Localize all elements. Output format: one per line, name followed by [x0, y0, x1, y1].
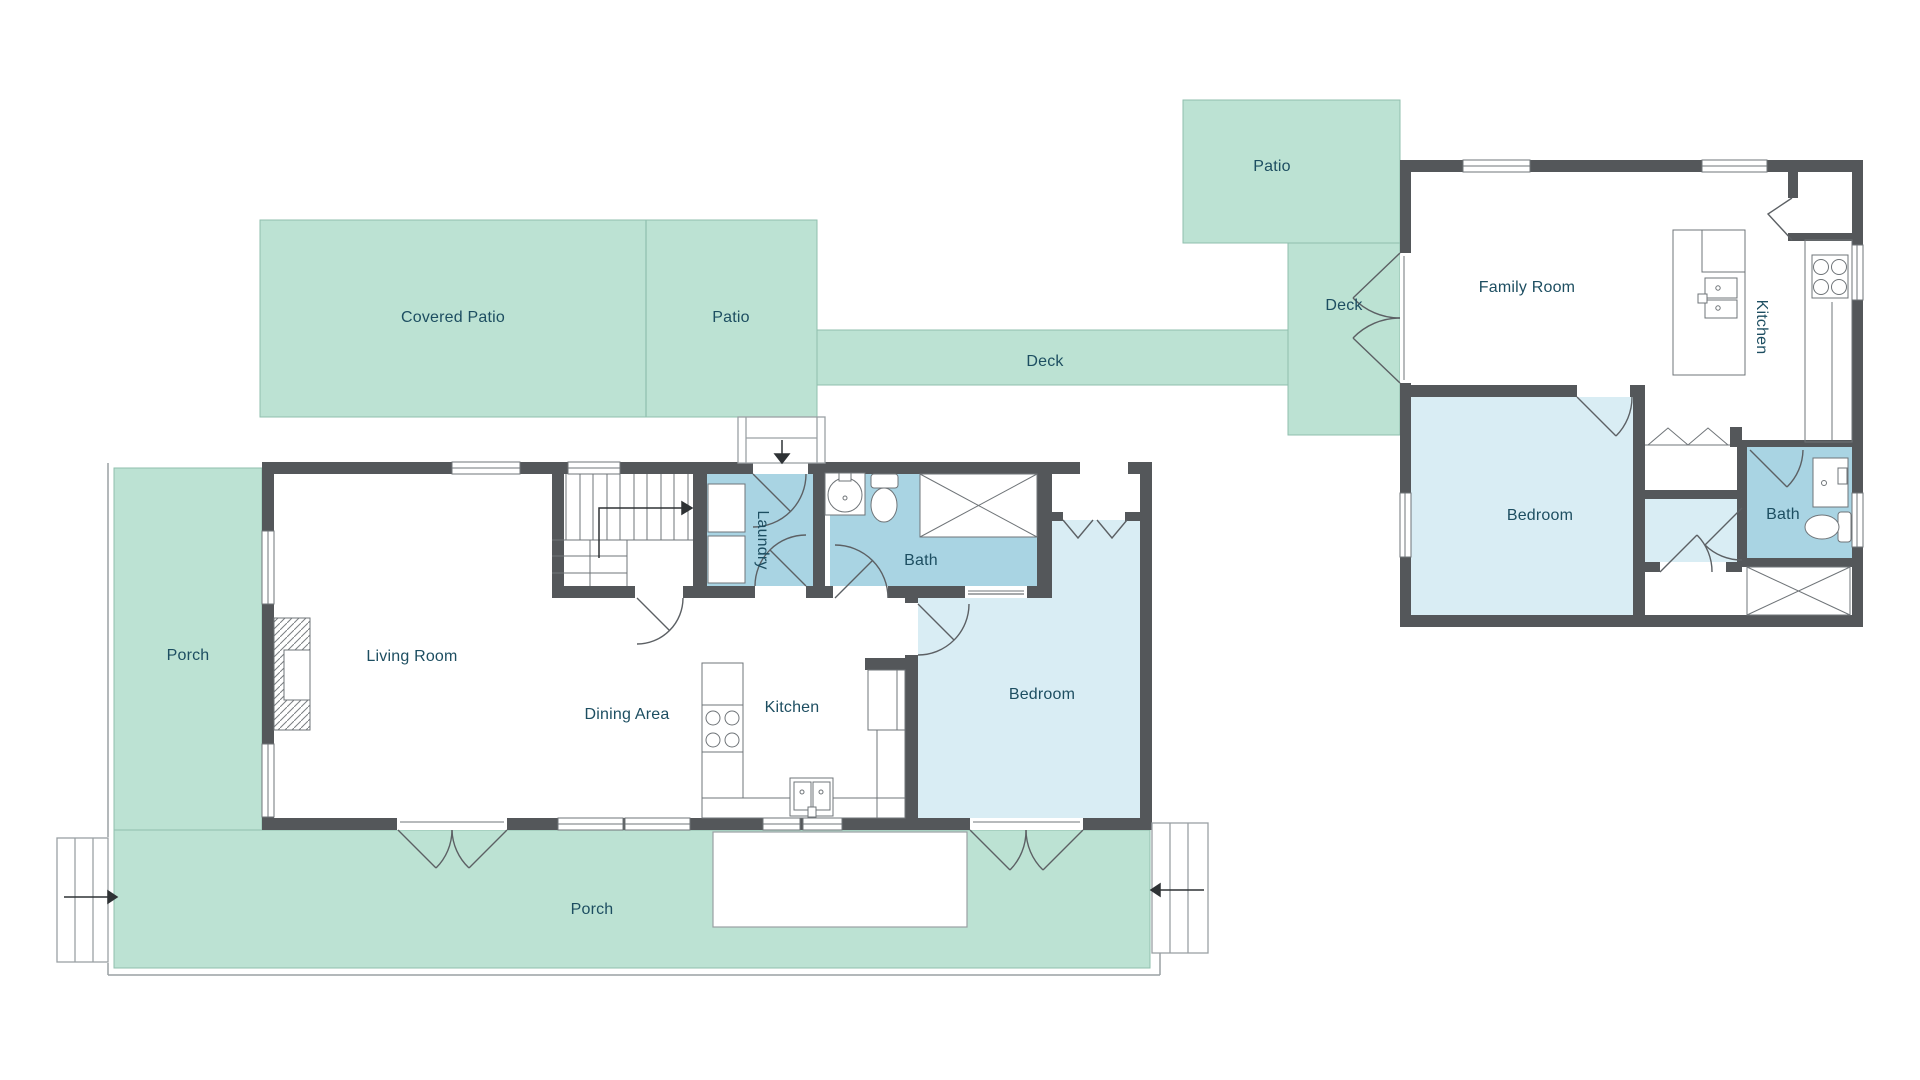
- deck-right-area: [1288, 243, 1400, 435]
- label-bedroom-left: Bedroom: [1009, 687, 1075, 703]
- window-rb-left-1: [1400, 493, 1411, 557]
- hall-right-fill: [1645, 498, 1737, 562]
- window-bottom-4: [803, 818, 842, 830]
- porch-notch: [713, 832, 967, 927]
- label-kitchen-left: Kitchen: [765, 700, 820, 716]
- window-rb-top-1: [1463, 160, 1530, 172]
- kitchen-left-fixtures: [702, 663, 905, 818]
- window-left-2: [262, 744, 274, 817]
- label-kitchen-right: Kitchen: [1753, 300, 1769, 355]
- fridge: [868, 670, 905, 730]
- window-top-1: [452, 462, 520, 474]
- window-rb-top-2: [1702, 160, 1767, 172]
- label-family-room: Family Room: [1479, 280, 1575, 296]
- kitchen-island: [1673, 230, 1745, 375]
- staircase: [552, 474, 693, 586]
- porch-bottom-area: [114, 830, 1150, 968]
- washer: [708, 484, 745, 532]
- bath-right-shower: [1813, 458, 1848, 507]
- utility-closet-right: [1747, 567, 1850, 615]
- label-bath-left: Bath: [904, 553, 938, 569]
- floor-plan-drawing: [0, 0, 1920, 1080]
- kitchen-right-fixtures: [1645, 230, 1852, 445]
- stairs-direction-arrow: [599, 502, 692, 558]
- window-bottom-2: [625, 818, 690, 830]
- stove-left: [702, 705, 743, 752]
- window-bottom-3: [763, 818, 800, 830]
- window-left-1: [262, 531, 274, 604]
- window-rb-right-2: [1852, 493, 1863, 547]
- label-living-room: Living Room: [366, 649, 457, 665]
- closet-rod-right: [1645, 428, 1730, 445]
- door-stair-closet: [637, 598, 683, 644]
- bath-left-toilet: [871, 474, 898, 522]
- bath-left-shower: [920, 474, 1037, 537]
- bedroom-right-fill: [1411, 397, 1633, 615]
- label-covered-patio: Covered Patio: [401, 310, 505, 326]
- floor-plan-canvas: Covered Patio Patio Deck Patio Deck Porc…: [0, 0, 1920, 1080]
- counter-right: [877, 730, 905, 818]
- label-patio-right: Patio: [1253, 159, 1290, 175]
- window-bottom-1: [558, 818, 623, 830]
- dryer: [708, 536, 745, 583]
- stove-right: [1812, 255, 1848, 298]
- room-fills: [707, 397, 1852, 818]
- bedroom-left-fill: [918, 598, 1140, 818]
- label-laundry: Laundry: [754, 510, 770, 569]
- window-top-2: [568, 462, 620, 474]
- steps-left: [57, 838, 108, 962]
- label-deck-right: Deck: [1325, 298, 1362, 314]
- label-bedroom-right: Bedroom: [1507, 508, 1573, 524]
- label-porch-left: Porch: [167, 648, 210, 664]
- bath-left-sink: [825, 473, 865, 515]
- closet-left-vestibule: [1052, 474, 1140, 512]
- label-porch-bottom: Porch: [571, 902, 614, 918]
- patio-right-area: [1183, 100, 1400, 243]
- label-bath-right: Bath: [1766, 507, 1800, 523]
- label-patio-left: Patio: [712, 310, 749, 326]
- fireplace: [274, 618, 310, 730]
- window-rb-right-1: [1852, 245, 1863, 300]
- label-dining-area: Dining Area: [585, 707, 670, 723]
- label-deck-strip: Deck: [1026, 354, 1063, 370]
- bedroom-left-nook-fill: [1052, 520, 1140, 598]
- kitchen-sink-left: [790, 778, 833, 817]
